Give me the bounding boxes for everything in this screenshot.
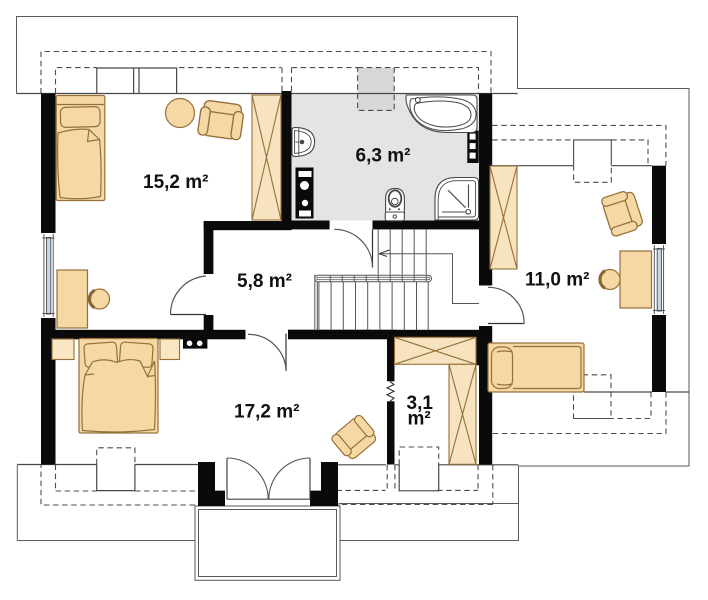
svg-text:m²: m² bbox=[408, 409, 431, 430]
svg-text:6,3 m²: 6,3 m² bbox=[356, 146, 411, 167]
svg-text:15,2 m²: 15,2 m² bbox=[143, 172, 208, 193]
svg-text:17,2 m²: 17,2 m² bbox=[234, 402, 299, 423]
svg-text:11,0 m²: 11,0 m² bbox=[525, 270, 589, 291]
svg-text:5,8 m²: 5,8 m² bbox=[237, 271, 292, 292]
